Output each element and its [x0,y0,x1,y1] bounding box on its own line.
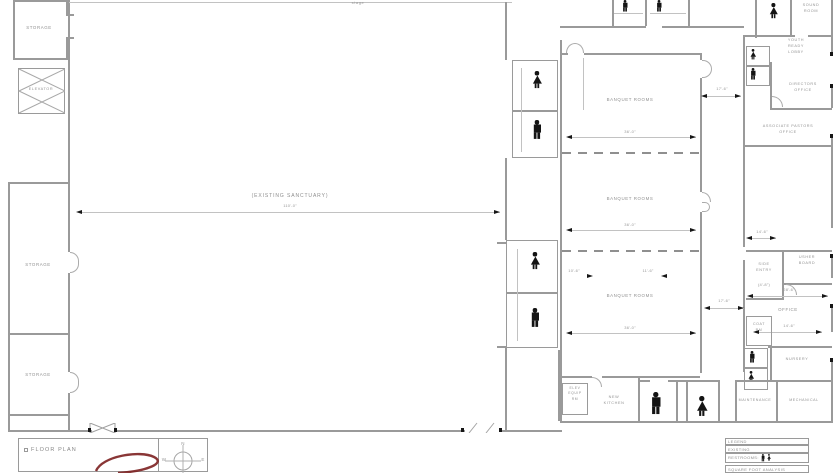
wall-segment [521,68,522,152]
dimension-arrow [747,294,753,298]
drawing-element [469,423,494,433]
wall-segment [497,242,506,244]
title-bullet [24,448,28,452]
door-arc [70,372,79,393]
wall-segment [505,158,507,240]
drawing-element [165,445,201,473]
wall-segment [517,249,518,341]
door-jamb-mark [830,52,833,56]
room-label-nursery: NURSERY [774,357,820,363]
door-jamb-mark [830,358,833,362]
wall-segment [676,380,678,421]
wall-segment [614,13,643,14]
woman-restroom-icon [696,396,708,416]
drawing-element [763,459,764,461]
wall-segment [506,292,558,294]
folding-partition [562,152,700,154]
wall-segment [831,306,833,332]
legend-restrooms: RESTROOMS: [728,455,759,460]
room-label-storage-low: STORAGE [14,372,62,379]
big-room-label: (EXISTING SANCTUARY) [210,193,370,199]
drawing-element [751,76,752,80]
drawing-element [530,265,540,270]
drawing-element [535,120,539,124]
drawing-element [769,14,778,18]
wall-segment [497,346,506,348]
room-label-banquet-1: BANQUET ROOMS [570,97,690,104]
wall-segment [13,58,68,60]
drawing-element [750,76,756,80]
drawing-element [749,359,755,363]
wall-segment [745,35,795,37]
dimension-arrow [76,210,82,214]
wall-segment [650,13,686,14]
drawing-element [533,125,540,133]
wall-segment [505,348,507,430]
dimension-arrow [566,228,572,232]
woman-restroom-icon [769,3,778,18]
drawing-element [657,407,660,414]
dimension-arrow [701,94,707,98]
legend-existing: EXISTING [728,447,750,452]
stage-note: stage [340,1,376,6]
wall-segment [831,136,833,228]
dimension-arrow [690,228,696,232]
wall-segment [831,0,833,54]
wall-segment [560,421,833,423]
wall-segment [8,182,10,431]
drawing-element [697,401,708,410]
dim-14-6: 14'-6" [746,230,778,235]
wall-segment [68,0,70,432]
dimension-arrow [587,274,593,278]
dim-36-1: 36'-0" [602,130,658,135]
wall-segment [13,0,15,60]
wall-segment [13,0,67,2]
wall-segment [688,0,690,26]
drawing-element [536,265,538,270]
door-jamb-mark [499,428,502,432]
legend-footer: SQUARE FOOT ANALYSIS [728,467,785,472]
drawing-element [752,359,753,363]
drawing-element [623,8,624,12]
room-label-elev-equip: ELEV EQUIP RM [563,386,587,402]
drawing-element [753,57,754,60]
dimension-arrow [738,306,744,310]
dimension-arrow [770,236,776,240]
drawing-element [650,407,662,414]
drawing-element [653,392,658,397]
door-jamb-mark [830,304,833,308]
dim-36-2: 36'-0" [602,223,658,228]
door-arc [592,377,602,387]
door-arc [70,252,79,273]
room-label-coat-rm: COAT RM [748,322,770,333]
wall-segment [700,212,702,373]
room-label-youth-lobby: YOUTH READY LOBBY [775,38,817,56]
room-label-office: OFFICE [766,307,810,314]
wall-segment [69,2,512,3]
dim-17-6-top: 17'-6" [702,87,742,92]
wall-segment [558,350,560,421]
man-restroom-icon [656,0,662,12]
man-restroom-icon [750,68,756,80]
red-markup-scribble [88,449,168,473]
dim-10-6: 10'-6" [560,269,588,274]
wall-segment [560,40,562,372]
drawing-element [534,133,536,139]
entry-door-bowtie-icon [89,423,116,433]
dimension-arrow [494,210,500,214]
room-label-mechanical: MECHANICAL [780,398,828,404]
drawing-element [532,84,542,89]
compass-n-label: N [179,441,187,446]
dimension-arrow [704,306,710,310]
wall-segment [115,430,465,432]
drawing-element [659,8,660,12]
woman-restroom-icon [767,454,771,461]
drawing-element [750,359,751,363]
drawing-element [750,57,756,60]
drawing-element [533,252,537,256]
wall-segment [568,137,696,138]
dim-28-6: 28'-6" [768,288,810,293]
door-jamb-mark [114,428,117,432]
dimension-arrow [822,294,828,298]
wall-segment [746,250,832,252]
compass-e-label: E [199,457,207,462]
wall-segment [808,35,833,37]
drawing-element [769,459,770,461]
drawing-element [652,397,660,406]
wall-segment [662,26,744,28]
floor-plan-sheet: STORAGE ELEVATOR STORAGE STORAGE (EXISTI… [0,0,840,473]
drawing-element [532,76,541,84]
wall-segment [831,360,833,421]
drawing-element [656,8,662,12]
wall-segment [831,86,833,108]
dimension-arrow [746,236,752,240]
wall-segment [735,380,832,382]
drawing-element [90,423,115,433]
door-arc [575,43,584,53]
drawing-element [769,7,777,14]
man-restroom-icon [530,308,540,327]
wall-segment [8,333,68,335]
dim-17-6-bottom: 17'-6" [704,299,744,304]
wall-segment [746,298,784,300]
wall-segment [700,53,702,60]
drawing-element [532,321,534,327]
drawing-element [622,8,628,12]
door-arc [702,192,711,202]
dim-14-6b: 14'-6" [768,324,810,329]
room-label-directors-office: DIRECTORS OFFICE [780,82,826,94]
wall-segment [8,182,68,184]
door-jamb-mark [830,84,833,88]
dimension-arrow [816,330,822,334]
wall-segment [602,376,700,378]
wall-segment [560,53,568,55]
drawing-element [536,321,538,327]
wall-segment [755,0,757,38]
wall-segment [718,380,720,421]
man-restroom-icon [650,392,662,414]
drawing-element [774,14,776,18]
door-jamb-mark [830,134,833,138]
man-restroom-icon [761,454,765,461]
wall-segment [743,35,745,247]
room-label-sound-room: SOUND ROOM [792,3,830,15]
drawing-element [530,321,540,327]
compass-w-label: W [160,457,168,462]
drawing-element [703,411,705,416]
wall-segment [500,430,562,432]
wall-segment [770,108,832,110]
drawing-element [699,396,704,401]
room-label-elevator: ELEVATOR [21,87,61,93]
drawing-element [538,133,540,139]
room-label-maintenance: MAINTENANCE [732,398,778,404]
door-jamb-mark [88,428,91,432]
drawing-element [767,459,771,461]
door-jamb-mark [461,428,464,432]
woman-restroom-icon [532,71,542,88]
man-restroom-icon [532,120,542,139]
sheet-title: FLOOR PLAN [31,447,77,453]
wall-segment [686,380,688,421]
drawing-element [530,257,539,265]
double-door-ticks-icon [464,422,502,433]
big-room-dimension: 110'-0" [250,204,330,209]
wall-segment [568,333,696,334]
drawing-element [772,3,776,7]
wall-segment [80,212,500,213]
drawing-element [534,84,536,89]
woman-restroom-icon [530,252,540,269]
dimension-arrow [690,135,696,139]
door-arc [772,96,783,107]
wall-segment [568,230,696,231]
room-label-storage-mid: STORAGE [14,262,62,269]
wall-segment [770,346,772,380]
drawing-element [696,411,708,416]
woman-restroom-icon [750,49,756,60]
drawing-element [96,454,158,473]
wall-segment [750,296,828,297]
wall-segment [512,110,558,112]
drawing-element [751,57,752,60]
door-arc [702,202,710,212]
room-label-assoc-pastors-office: ASSOCIATE PASTORS OFFICE [748,124,828,136]
room-label-side-entry: SIDE ENTRY [748,262,780,274]
drawing-element [533,308,537,312]
wall-segment [640,380,650,382]
wall-segment [745,145,833,147]
door-arc [566,43,575,53]
dimension-arrow [566,135,572,139]
dimension-arrow [690,331,696,335]
drawing-element [753,76,754,80]
drawing-element [531,313,538,321]
wall-segment [505,2,507,60]
drawing-element [625,8,626,12]
dim-36-3: 36'-0" [602,326,658,331]
man-restroom-icon [622,0,628,12]
drawing-element [657,8,658,12]
room-label-kitchen: NEW KITCHEN [594,395,634,407]
dimension-arrow [735,94,741,98]
room-label-storage-top: STORAGE [18,25,60,32]
door-jamb-mark [830,254,833,258]
tiny-restroom-1 [744,348,768,368]
room-label-banquet-3: BANQUET ROOMS [570,293,690,300]
drawing-element [535,71,539,75]
drawing-element [532,265,534,270]
drawing-element [532,133,542,139]
wall-segment [562,376,592,378]
wall-segment [560,26,646,28]
drawing-element [699,411,701,416]
wall-segment [8,414,68,416]
folding-partition [562,250,700,252]
wall-segment [584,53,701,55]
drawing-element [761,459,765,461]
door-arc [702,60,712,78]
drawing-element [771,14,773,18]
wall-segment [8,430,92,432]
wall-segment [645,0,647,26]
wall-segment [638,376,640,421]
room-label-banquet-2: BANQUET ROOMS [570,196,690,203]
wall-segment [768,346,832,348]
dim-11-6: 11'-6" [634,269,662,274]
room-label-usher-board: USHER BOARD [786,255,828,267]
wall-segment [831,256,833,278]
dimension-arrow [661,274,667,278]
dimension-arrow [566,331,572,335]
legend-title: LEGEND [728,439,747,444]
drawing-element [652,407,655,414]
drawing-element [538,84,540,89]
man-restroom-icon [749,351,755,363]
wall-segment [746,65,770,67]
